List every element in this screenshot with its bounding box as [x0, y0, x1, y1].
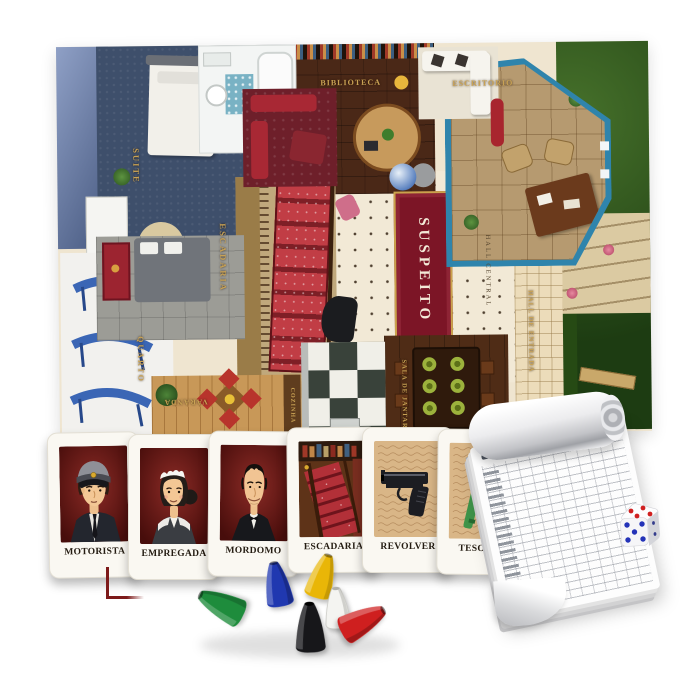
escritorio-label: ESCRITORIO	[452, 78, 513, 88]
globe-lamp	[394, 75, 408, 89]
patio-chair	[219, 408, 240, 429]
red-sofa	[251, 121, 269, 179]
die	[610, 498, 668, 556]
flower-icon	[567, 288, 578, 299]
window	[600, 169, 609, 178]
blue-vase	[389, 163, 416, 190]
card-label: EMPREGADA	[129, 549, 219, 559]
pawn-green	[182, 570, 256, 638]
mordomo-portrait	[220, 445, 289, 542]
plate	[422, 379, 436, 393]
flower-icon	[603, 244, 614, 255]
room-sitting	[242, 88, 337, 187]
dining-chair	[480, 361, 494, 375]
red-couch	[491, 98, 505, 146]
quarto-label: QUARTO	[136, 336, 145, 383]
hall-central-label: HALL CENTRAL	[484, 235, 492, 308]
bed	[134, 238, 211, 303]
notepad-page-curl	[493, 577, 568, 628]
plate	[422, 357, 436, 371]
plate	[450, 379, 464, 393]
toilet	[205, 84, 227, 106]
plant-icon	[113, 168, 130, 185]
round-table	[353, 103, 422, 172]
sala-jantar-label: SALA DE JANTAR	[400, 359, 408, 428]
plate	[423, 401, 437, 415]
armchair	[543, 137, 575, 166]
plate	[451, 401, 465, 415]
motorista-portrait	[59, 445, 129, 542]
scene: SUSPEITO COZINHA SUITE BIBLI	[0, 0, 700, 700]
hall-entrada-label: HALL DE ENTRADA	[527, 290, 536, 372]
plate	[450, 357, 464, 371]
pawn-black	[285, 593, 335, 657]
suite-label: SUITE	[131, 148, 141, 184]
card-empregada: EMPREGADA	[128, 434, 220, 580]
rug	[102, 242, 131, 300]
varanda-label: VARANDA	[164, 398, 208, 407]
bookshelf	[294, 43, 434, 59]
game-board: SUSPEITO COZINHA SUITE BIBLI	[56, 41, 652, 437]
plant-icon	[464, 215, 479, 230]
kitchen-counter	[301, 342, 309, 436]
escadaria-label: ESCADARIA	[218, 223, 229, 292]
cozinha-label: COZINHA	[289, 388, 295, 424]
desk	[524, 172, 600, 237]
corner-bracket	[106, 567, 109, 599]
red-sofa	[250, 94, 316, 112]
suspeito-rug: SUSPEITO	[394, 191, 454, 350]
patio-chair	[218, 368, 239, 389]
revolver-icon	[374, 441, 442, 537]
armchair	[500, 142, 535, 174]
empregada-portrait	[140, 448, 208, 544]
biblioteca-label: BIBLIOTECA	[320, 78, 381, 88]
room-cozinha	[301, 342, 386, 437]
red-armchair	[289, 130, 327, 165]
suspeito-label: SUSPEITO	[414, 217, 432, 323]
window	[600, 141, 609, 150]
staircase-photo	[298, 441, 367, 538]
corner-bracket	[106, 596, 144, 599]
sink	[203, 52, 231, 66]
card-label: MOTORISTA	[50, 546, 140, 558]
patio-chair	[241, 388, 262, 409]
